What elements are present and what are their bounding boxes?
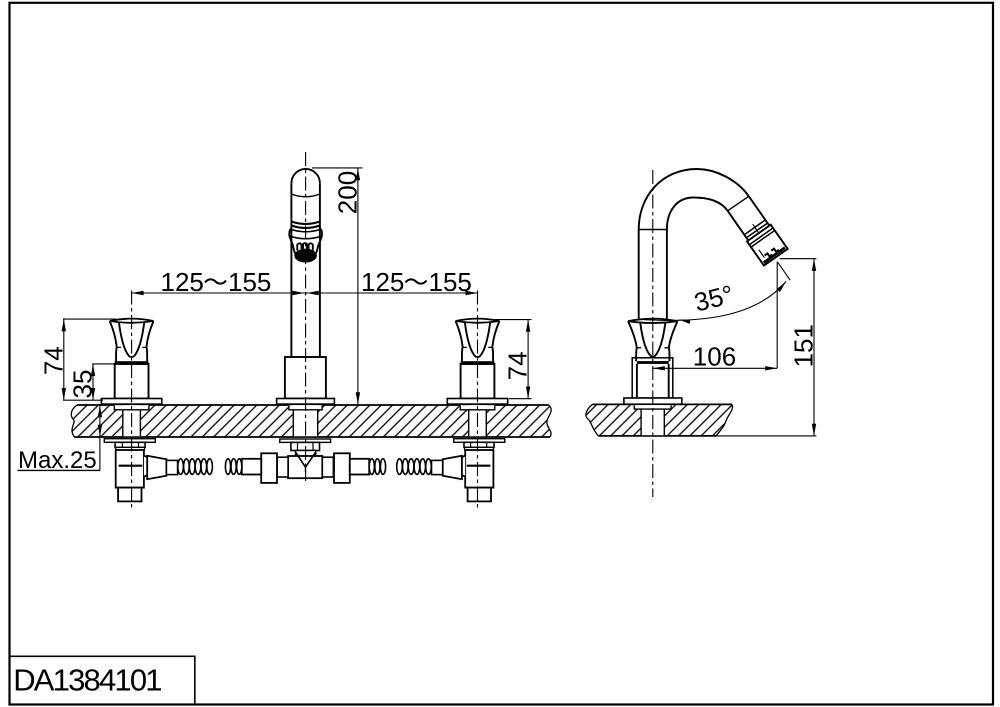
svg-text:74: 74 [503, 351, 533, 380]
svg-text:DA1384101: DA1384101 [13, 663, 161, 698]
svg-text:155: 155 [429, 267, 472, 297]
svg-text:151: 151 [789, 324, 819, 367]
svg-text:200: 200 [332, 171, 362, 214]
svg-text:74: 74 [38, 346, 68, 375]
svg-text:125: 125 [361, 267, 404, 297]
svg-text:125: 125 [161, 267, 204, 297]
svg-text:106: 106 [693, 341, 736, 371]
svg-text:35: 35 [67, 370, 97, 399]
svg-text:35°: 35° [691, 279, 736, 318]
svg-text:155: 155 [228, 267, 271, 297]
